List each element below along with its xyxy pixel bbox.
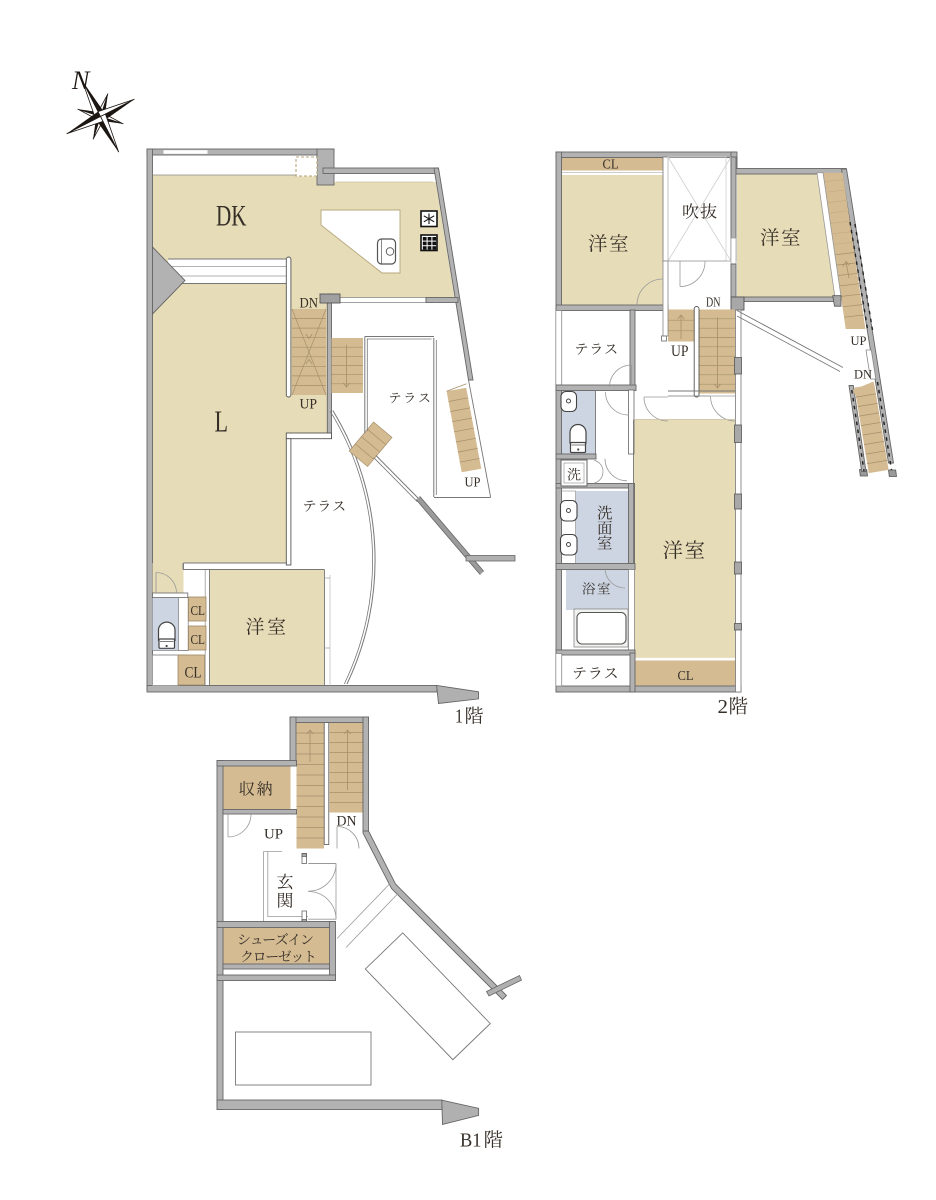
svg-text:CL: CL: [191, 603, 206, 618]
svg-text:1: 1: [455, 706, 463, 728]
svg-text:DN: DN: [337, 814, 357, 830]
svg-text:UP: UP: [264, 827, 283, 843]
svg-text:DN: DN: [300, 296, 319, 312]
svg-text:2: 2: [718, 696, 729, 718]
svg-text:UP: UP: [671, 343, 689, 360]
svg-text:DN: DN: [706, 296, 721, 311]
svg-text:CL: CL: [191, 632, 206, 647]
svg-text:DK: DK: [216, 200, 247, 233]
svg-text:UP: UP: [300, 397, 318, 413]
svg-text:UP: UP: [465, 475, 481, 490]
svg-text:L: L: [215, 404, 229, 439]
svg-text:CL: CL: [185, 665, 202, 682]
svg-text:N: N: [71, 66, 91, 95]
svg-text:DN: DN: [854, 367, 873, 382]
svg-text:UP: UP: [851, 333, 867, 348]
svg-text:CL: CL: [603, 157, 619, 172]
svg-text:B1: B1: [460, 1130, 482, 1152]
svg-text:CL: CL: [678, 669, 694, 684]
